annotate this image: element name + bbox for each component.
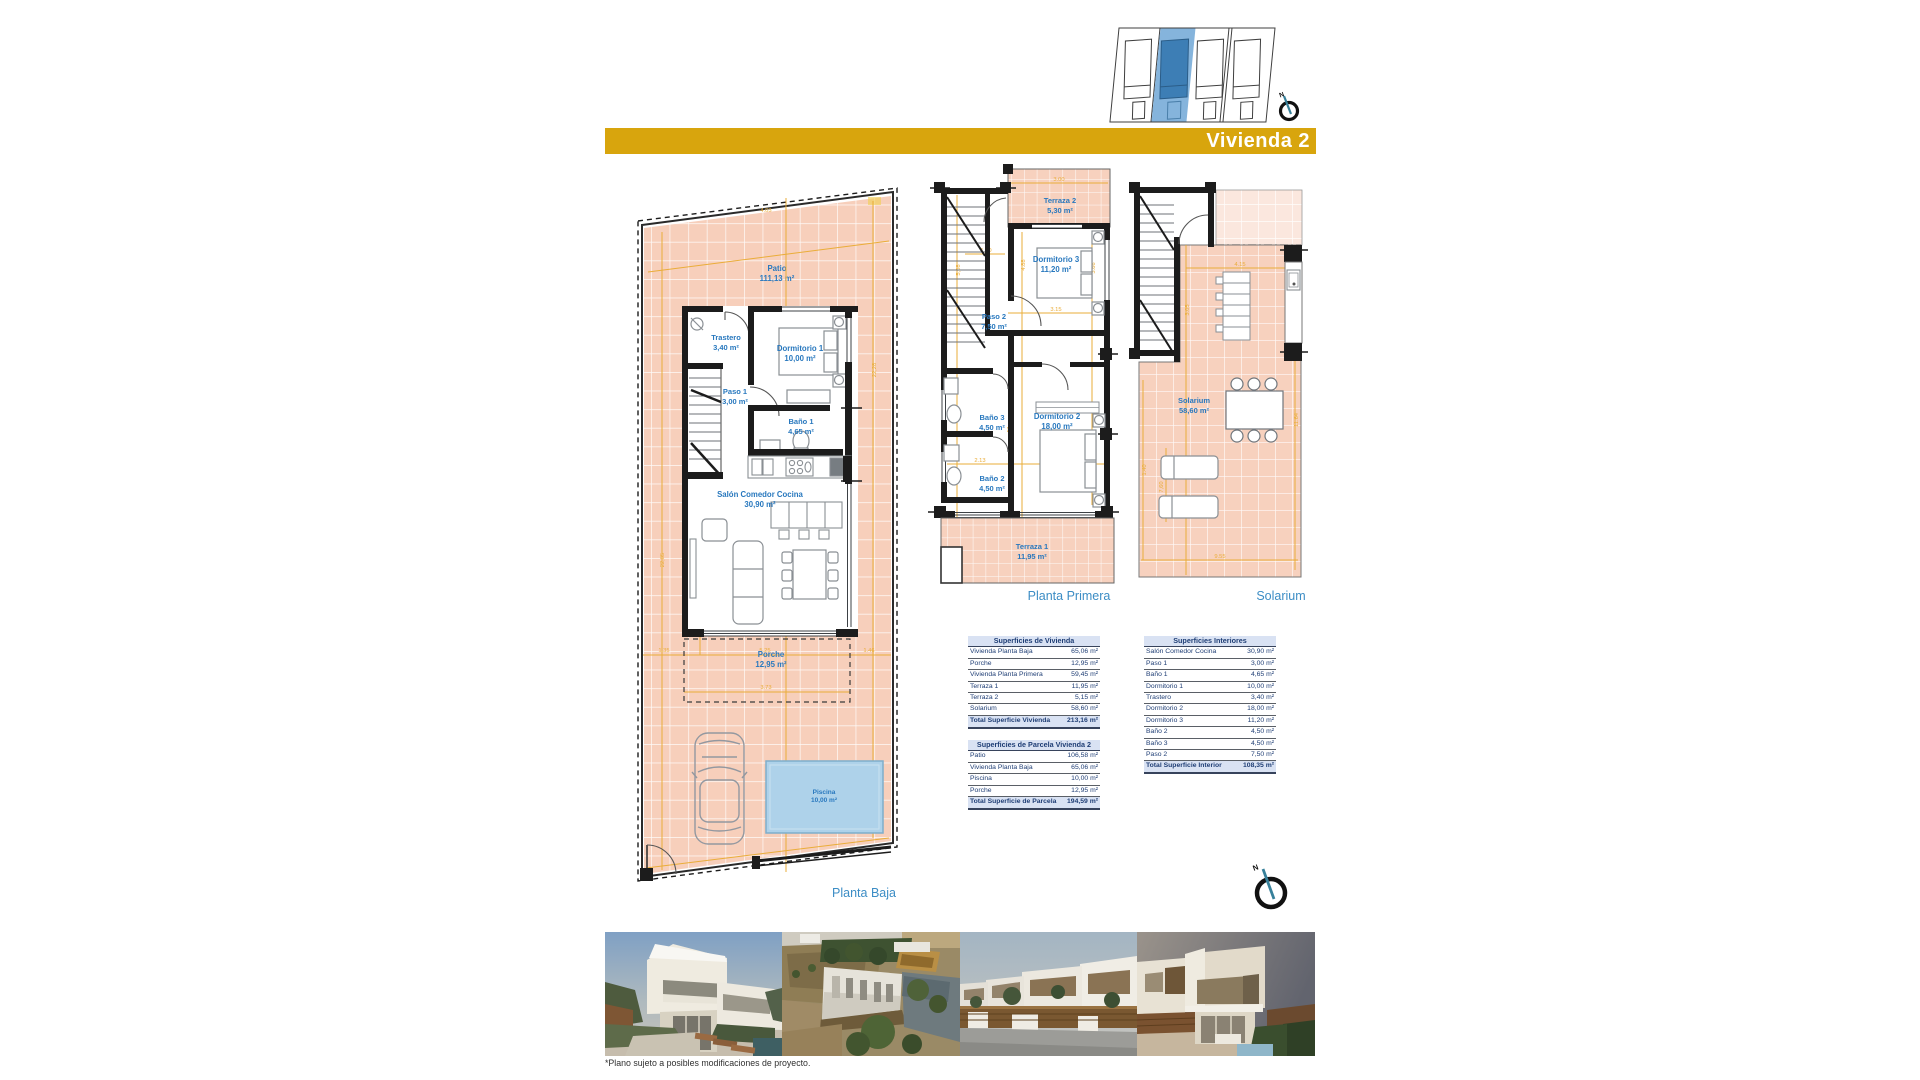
- svg-text:11,20 m²: 11,20 m²: [1041, 265, 1072, 274]
- svg-text:3.05: 3.05: [1185, 304, 1191, 315]
- svg-text:11.64: 11.64: [1294, 412, 1300, 427]
- svg-text:4.88: 4.88: [1021, 259, 1027, 270]
- svg-text:4,50 m²: 4,50 m²: [979, 484, 1005, 493]
- svg-text:Dormitorio 2: Dormitorio 2: [1034, 412, 1081, 421]
- svg-text:Solarium: Solarium: [1178, 396, 1210, 405]
- svg-text:10,00 m²: 10,00 m²: [784, 354, 816, 363]
- svg-text:3.15: 3.15: [1050, 307, 1061, 313]
- svg-text:9.55: 9.55: [1214, 554, 1225, 560]
- svg-text:N: N: [1251, 862, 1259, 872]
- svg-text:Dormitorio 3: Dormitorio 3: [1033, 255, 1080, 264]
- svg-text:18,00 m²: 18,00 m²: [1041, 422, 1073, 431]
- svg-text:Planta Baja: Planta Baja: [832, 886, 896, 900]
- svg-text:Solarium: Solarium: [1256, 589, 1305, 603]
- svg-text:4,65 m²: 4,65 m²: [788, 427, 814, 436]
- svg-text:3,00 m²: 3,00 m²: [722, 397, 748, 406]
- svg-text:30,90 m²: 30,90 m²: [744, 500, 776, 509]
- svg-text:Terraza 1: Terraza 1: [1016, 542, 1048, 551]
- svg-text:1.35: 1.35: [658, 648, 669, 654]
- svg-text:22,85: 22,85: [660, 553, 666, 568]
- svg-text:22,28: 22,28: [872, 363, 878, 378]
- svg-text:3,40 m²: 3,40 m²: [713, 343, 739, 352]
- svg-text:Paso 2: Paso 2: [982, 312, 1006, 321]
- svg-text:Planta Primera: Planta Primera: [1028, 589, 1111, 603]
- svg-text:Trastero: Trastero: [711, 333, 741, 342]
- svg-text:2.13: 2.13: [974, 458, 985, 464]
- svg-text:10,00 m²: 10,00 m²: [811, 797, 838, 804]
- svg-text:Patio: Patio: [767, 264, 786, 273]
- svg-text:Baño 1: Baño 1: [788, 417, 813, 426]
- svg-text:5,30 m²: 5,30 m²: [1047, 206, 1073, 215]
- svg-text:Salón Comedor Cocina: Salón Comedor Cocina: [717, 490, 803, 499]
- svg-text:58,60 m²: 58,60 m²: [1179, 406, 1210, 415]
- svg-text:3.73: 3.73: [760, 685, 771, 691]
- svg-text:Paso 1: Paso 1: [723, 387, 747, 396]
- svg-text:Porche: Porche: [758, 650, 785, 659]
- svg-text:Baño 3: Baño 3: [979, 413, 1004, 422]
- svg-text:7,50 m²: 7,50 m²: [981, 322, 1007, 331]
- svg-text:4,50 m²: 4,50 m²: [979, 423, 1005, 432]
- svg-text:Baño 2: Baño 2: [979, 474, 1004, 483]
- svg-text:12,95 m²: 12,95 m²: [755, 660, 787, 669]
- svg-text:1.40: 1.40: [1142, 464, 1148, 475]
- svg-text:7,60: 7,60: [1159, 481, 1165, 492]
- svg-text:11,95 m²: 11,95 m²: [1017, 552, 1047, 561]
- svg-text:4.03: 4.03: [760, 208, 771, 214]
- svg-text:3.00: 3.00: [1053, 177, 1064, 183]
- svg-text:Dormitorio 1: Dormitorio 1: [777, 344, 824, 353]
- svg-text:111,13 m²: 111,13 m²: [760, 274, 795, 283]
- svg-text:4.15: 4.15: [1234, 262, 1245, 268]
- svg-text:Terraza 2: Terraza 2: [1044, 196, 1076, 205]
- svg-text:1.46: 1.46: [863, 648, 874, 654]
- svg-text:Piscina: Piscina: [813, 789, 836, 796]
